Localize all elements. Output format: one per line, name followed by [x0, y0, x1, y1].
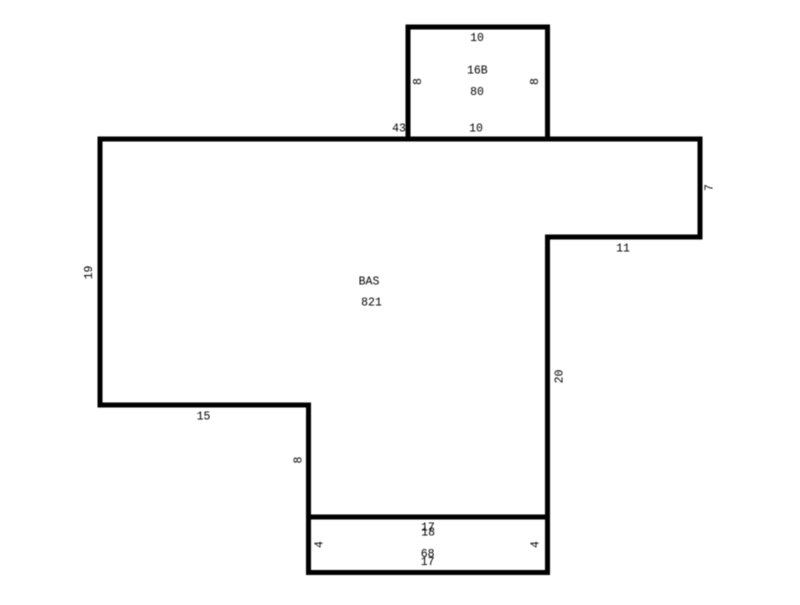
svg-text:10: 10 [469, 123, 483, 136]
svg-text:16B: 16B [467, 64, 488, 77]
svg-text:4: 4 [530, 541, 543, 548]
svg-text:11: 11 [616, 243, 630, 256]
svg-text:18: 18 [421, 527, 435, 540]
svg-text:20: 20 [553, 370, 566, 384]
svg-text:821: 821 [361, 297, 382, 310]
svg-text:8: 8 [529, 78, 542, 85]
svg-text:15: 15 [197, 411, 211, 424]
svg-text:80: 80 [470, 86, 484, 99]
svg-text:8: 8 [292, 456, 305, 463]
svg-text:8: 8 [412, 78, 425, 85]
svg-text:10: 10 [470, 32, 484, 45]
svg-text:43: 43 [392, 123, 406, 136]
svg-text:4: 4 [313, 541, 326, 548]
svg-text:19: 19 [83, 266, 96, 280]
svg-text:17: 17 [421, 556, 435, 569]
svg-text:BAS: BAS [359, 276, 380, 289]
svg-text:7: 7 [704, 184, 717, 191]
